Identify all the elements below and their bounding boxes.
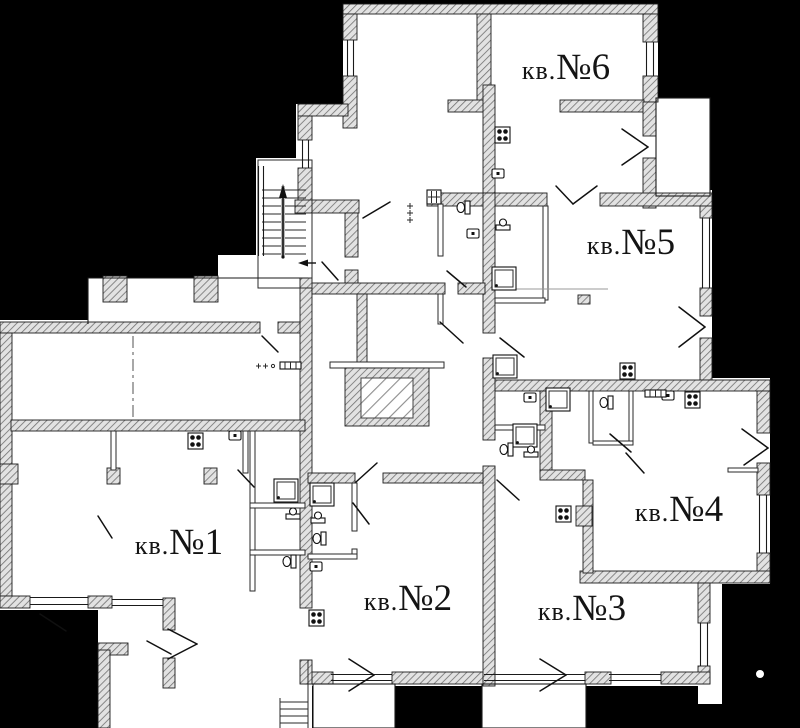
shower-icon (513, 424, 537, 447)
stove-icon (620, 363, 635, 379)
marker-dot (756, 670, 764, 678)
shower-icon (274, 479, 298, 502)
shower-icon (492, 267, 516, 290)
electrical-panel-icon (492, 169, 504, 178)
shower-icon (310, 483, 334, 506)
stove-icon (685, 392, 700, 408)
stove-icon (495, 127, 510, 143)
electrical-panel-icon (310, 562, 322, 571)
electrical-panel-icon (524, 393, 536, 402)
electrical-panel-icon (467, 229, 479, 238)
elevator-shaft (345, 368, 429, 426)
stove-icon (556, 506, 571, 522)
electrical-panel-icon (229, 431, 241, 440)
floor-plan-svg: кв.№1 кв.№2 кв.№3 кв.№4 кв.№5 кв.№6 (0, 0, 800, 728)
shower-icon (546, 388, 570, 411)
stove-icon (309, 610, 324, 626)
radiator-icon (427, 190, 441, 204)
stove-icon (188, 433, 203, 449)
floor-plan: кв.№1 кв.№2 кв.№3 кв.№4 кв.№5 кв.№6 (0, 0, 800, 728)
radiator-icon (645, 390, 666, 397)
radiator-icon (280, 362, 301, 369)
shower-icon (493, 355, 517, 378)
